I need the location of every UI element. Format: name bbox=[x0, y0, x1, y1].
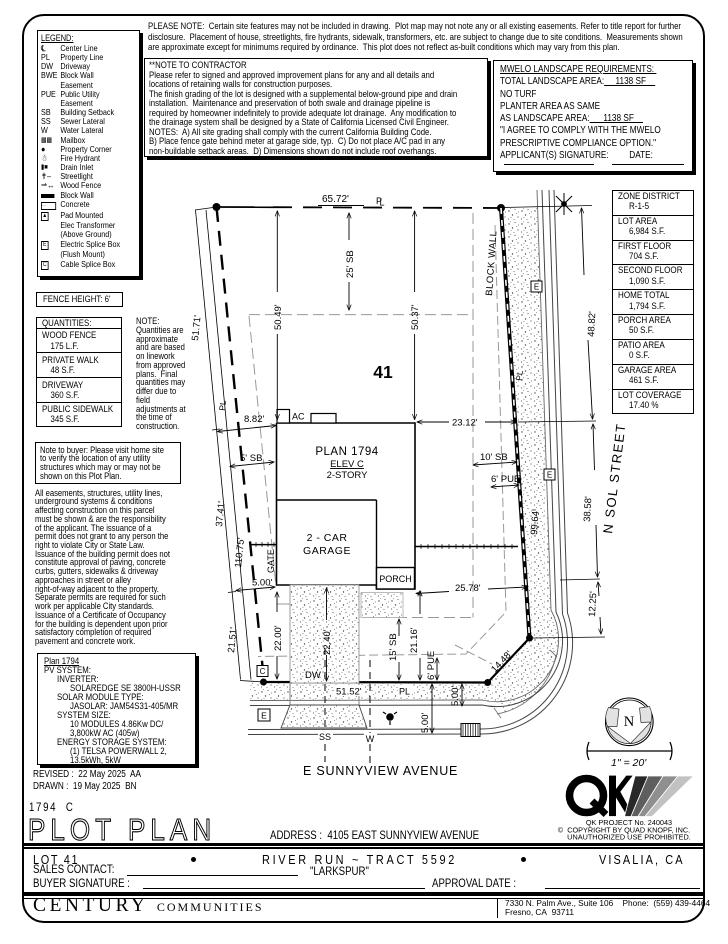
svg-text:51.52': 51.52' bbox=[336, 687, 362, 698]
svg-text:C: C bbox=[260, 667, 266, 676]
svg-text:GARAGE: GARAGE bbox=[303, 545, 351, 557]
svg-text:2 - CAR: 2 - CAR bbox=[307, 532, 348, 544]
svg-text:12.25': 12.25' bbox=[587, 591, 599, 617]
svg-text:N: N bbox=[624, 714, 635, 730]
svg-text:GATE: GATE bbox=[266, 549, 276, 573]
svg-text:41: 41 bbox=[373, 362, 393, 382]
svg-text:PL: PL bbox=[514, 370, 525, 381]
svg-text:15' SB: 15' SB bbox=[388, 633, 399, 661]
svg-text:50.49': 50.49' bbox=[273, 304, 284, 330]
svg-text:W: W bbox=[366, 734, 375, 744]
svg-text:N SOL STREET: N SOL STREET bbox=[600, 422, 628, 534]
svg-text:PL: PL bbox=[399, 687, 410, 697]
svg-text:99.64': 99.64' bbox=[529, 509, 542, 535]
svg-text:L: L bbox=[380, 198, 385, 208]
svg-text:51.71': 51.71' bbox=[190, 315, 204, 342]
svg-text:5.00': 5.00' bbox=[252, 578, 272, 589]
svg-text:10' SB: 10' SB bbox=[480, 452, 508, 463]
svg-text:22.40': 22.40' bbox=[322, 629, 333, 655]
svg-text:BLOCK WALL: BLOCK WALL bbox=[484, 230, 500, 296]
svg-text:50.37': 50.37' bbox=[410, 304, 421, 330]
svg-text:6' PUE: 6' PUE bbox=[426, 651, 437, 680]
svg-text:25.78': 25.78' bbox=[455, 583, 481, 594]
svg-text:5.00': 5.00' bbox=[420, 713, 431, 733]
svg-text:E: E bbox=[534, 283, 539, 292]
svg-text:21.16': 21.16' bbox=[409, 627, 420, 653]
svg-text:DW: DW bbox=[305, 670, 321, 681]
svg-text:ELEV C: ELEV C bbox=[330, 459, 364, 470]
svg-text:AC: AC bbox=[292, 412, 305, 422]
svg-text:38.58': 38.58' bbox=[582, 496, 594, 522]
svg-text:110.75': 110.75' bbox=[233, 537, 247, 568]
svg-text:23.12': 23.12' bbox=[452, 418, 478, 429]
svg-text:PL: PL bbox=[217, 400, 228, 412]
svg-text:5' SB: 5' SB bbox=[240, 453, 262, 464]
svg-text:SS: SS bbox=[319, 732, 331, 742]
svg-text:UNAUTHORIZED USE PROHIBITED.: UNAUTHORIZED USE PROHIBITED. bbox=[567, 833, 691, 842]
svg-text:22.00': 22.00' bbox=[273, 625, 284, 651]
svg-text:E SUNNYVIEW AVENUE: E SUNNYVIEW AVENUE bbox=[303, 764, 458, 778]
svg-text:PORCH: PORCH bbox=[379, 574, 412, 584]
svg-text:65.72': 65.72' bbox=[322, 194, 349, 205]
svg-text:1" = 20': 1" = 20' bbox=[611, 757, 647, 769]
svg-text:48.82': 48.82' bbox=[586, 311, 598, 337]
svg-text:25' SB: 25' SB bbox=[345, 250, 356, 278]
svg-text:5.00': 5.00' bbox=[450, 686, 461, 706]
svg-text:2-STORY: 2-STORY bbox=[327, 470, 368, 481]
svg-text:8.82': 8.82' bbox=[244, 414, 264, 425]
svg-text:E: E bbox=[261, 711, 267, 721]
svg-text:E: E bbox=[547, 471, 552, 480]
svg-text:PLAN 1794: PLAN 1794 bbox=[315, 446, 378, 458]
svg-text:6' PUE: 6' PUE bbox=[491, 474, 520, 485]
